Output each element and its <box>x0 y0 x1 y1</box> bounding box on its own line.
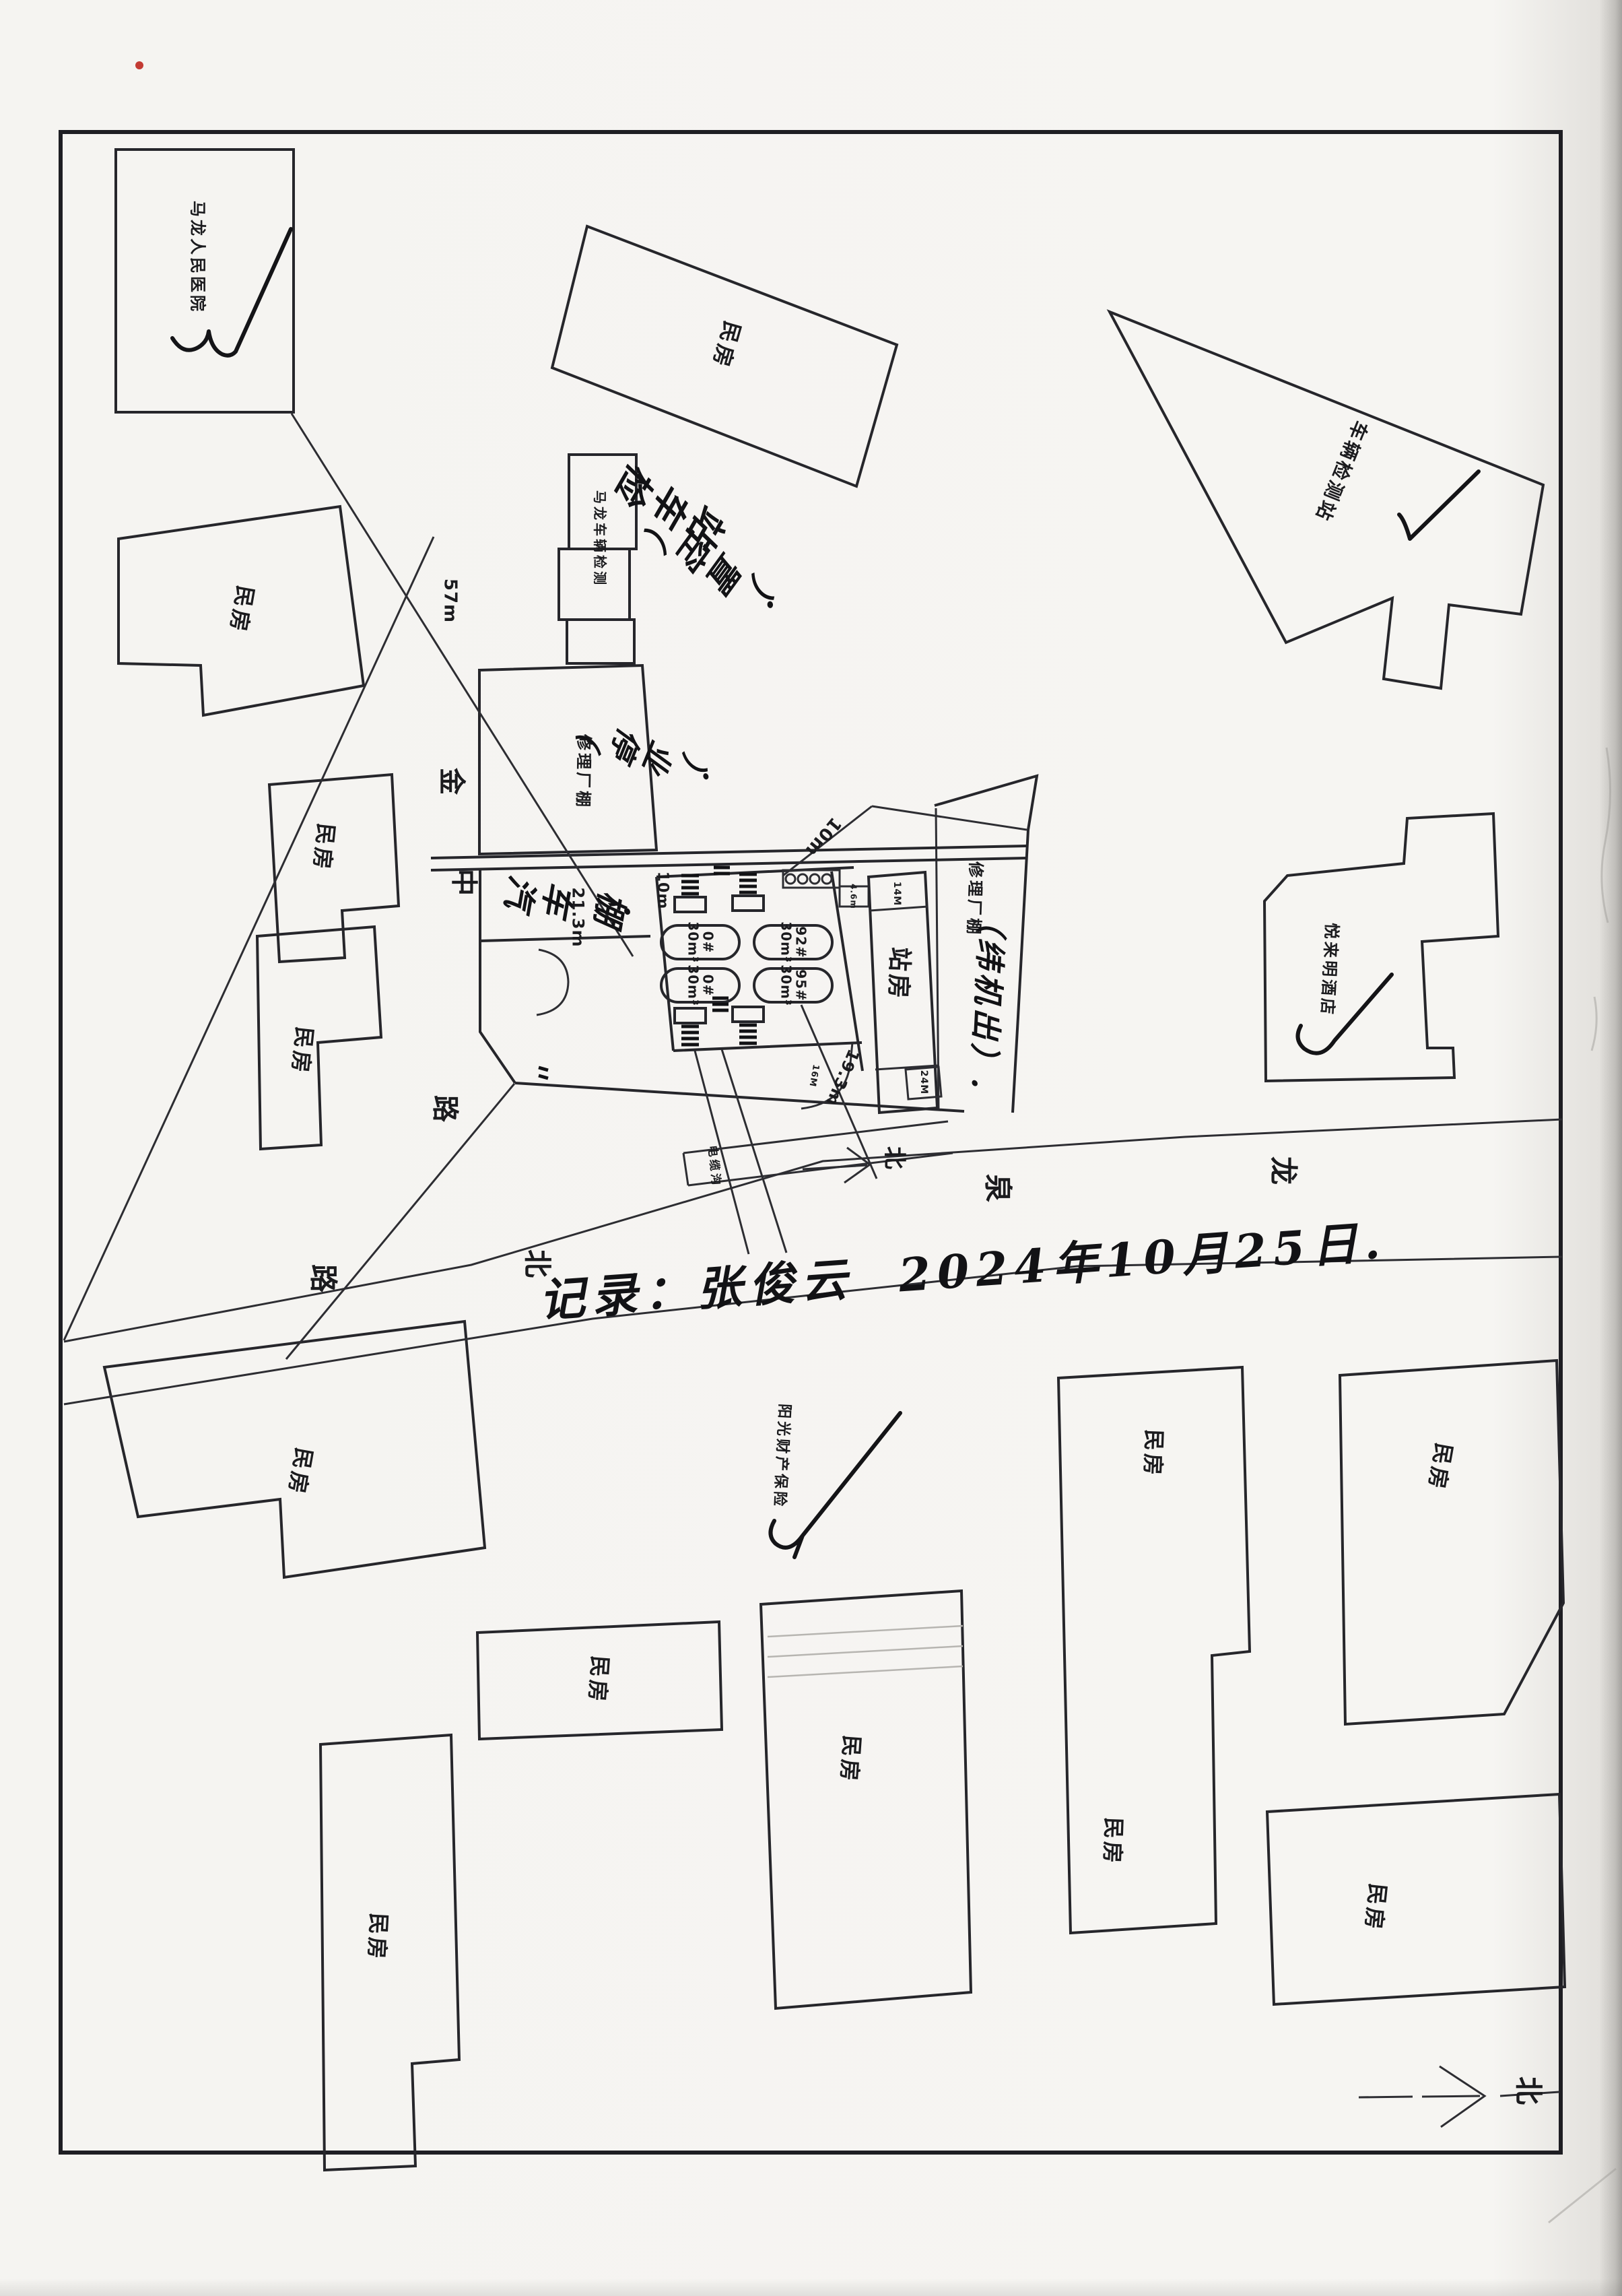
dim-10m-left: 10m <box>654 872 671 910</box>
label-cable-trench: 电缆沟 <box>705 1145 722 1189</box>
label-north-main: 北 <box>1512 2076 1544 2107</box>
label-minfang-d2: 民房 <box>584 1655 612 1705</box>
label-road-long: 龙 <box>1267 1156 1299 1187</box>
label-insurance: 阳光财产保险 <box>770 1403 792 1509</box>
label-vehicle-inspection-station: 车辆检测站 <box>1311 418 1371 525</box>
label-road-quan: 泉 <box>982 1174 1013 1205</box>
label-zhanfang: 站房 <box>883 946 912 1001</box>
label-minfang-d4: 民房 <box>364 1912 391 1962</box>
dim-10m-diagonal: 10m <box>801 813 845 859</box>
dim-19-3m: 19.3m <box>822 1047 863 1109</box>
label-malong-vehicle-inspection: 马龙车辆检测 <box>593 490 607 587</box>
label-hand-record: 记录：张俊云 2024年10月25日. <box>537 1216 1388 1327</box>
label-minfang-u3: 民房 <box>287 1025 316 1076</box>
label-hotel: 悦来明酒店 <box>1318 922 1341 1017</box>
label-minfang-d6: 民房 <box>1100 1816 1125 1866</box>
dim-57m: 57m <box>440 579 459 623</box>
label-road-zhong: 中 <box>448 869 479 898</box>
label-minfang-u2: 民房 <box>308 822 337 872</box>
label-tank-4: 95# 30m³ <box>778 964 809 1006</box>
label-room-24m: 24M <box>918 1070 928 1094</box>
label-road-lu-bottom: 路 <box>307 1264 339 1295</box>
label-minfang-d7: 民房 <box>1423 1441 1456 1493</box>
dim-4-6m: 4.6m <box>848 884 857 909</box>
label-road-lu-left: 路 <box>430 1095 460 1125</box>
label-tank-2: 0# 30m³ <box>685 964 716 1006</box>
label-minfang-u1: 民房 <box>225 583 257 635</box>
label-layer: 马龙人民医院民房车辆检测站马龙车辆检测检车站（空置）.修理厂棚（停业）.汽车 棚… <box>0 0 1622 2296</box>
label-minfang-d5: 民房 <box>1140 1429 1165 1478</box>
label-north-plan: 北 <box>881 1146 907 1172</box>
label-tank-3: 92# 30m³ <box>778 921 809 962</box>
label-road-jin: 金 <box>436 768 467 797</box>
label-minfang-d3: 民房 <box>836 1734 864 1784</box>
label-tank-1: 0# 30m³ <box>685 921 716 962</box>
label-room-16m: 16M <box>807 1063 820 1088</box>
label-hospital: 马龙人民医院 <box>189 201 207 314</box>
label-minfang-d1: 民房 <box>283 1445 316 1497</box>
label-minfang-topmid: 民房 <box>708 318 744 371</box>
scanned-site-plan: 马龙人民医院民房车辆检测站马龙车辆检测检车站（空置）.修理厂棚（停业）.汽车 棚… <box>0 0 1622 2296</box>
dim-21-3m: 21.3m <box>569 887 587 947</box>
label-minfang-d8: 民房 <box>1360 1882 1389 1932</box>
label-room-14m: 14M <box>891 882 902 906</box>
